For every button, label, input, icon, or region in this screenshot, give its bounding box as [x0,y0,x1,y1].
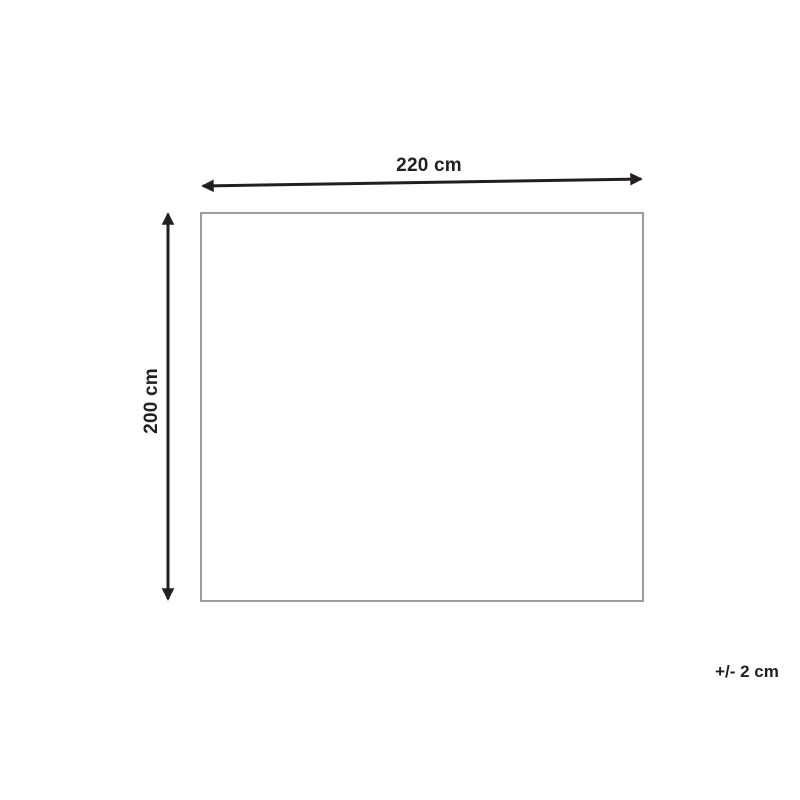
product-outline-rectangle [200,212,644,602]
height-dimension-label: 200 cm [141,341,161,461]
dimension-diagram: 220 cm 200 cm +/- 2 cm [0,0,800,800]
width-dimension-label: 220 cm [369,155,489,177]
width-dimension-arrow-icon [203,179,641,186]
tolerance-label: +/- 2 cm [702,662,792,682]
